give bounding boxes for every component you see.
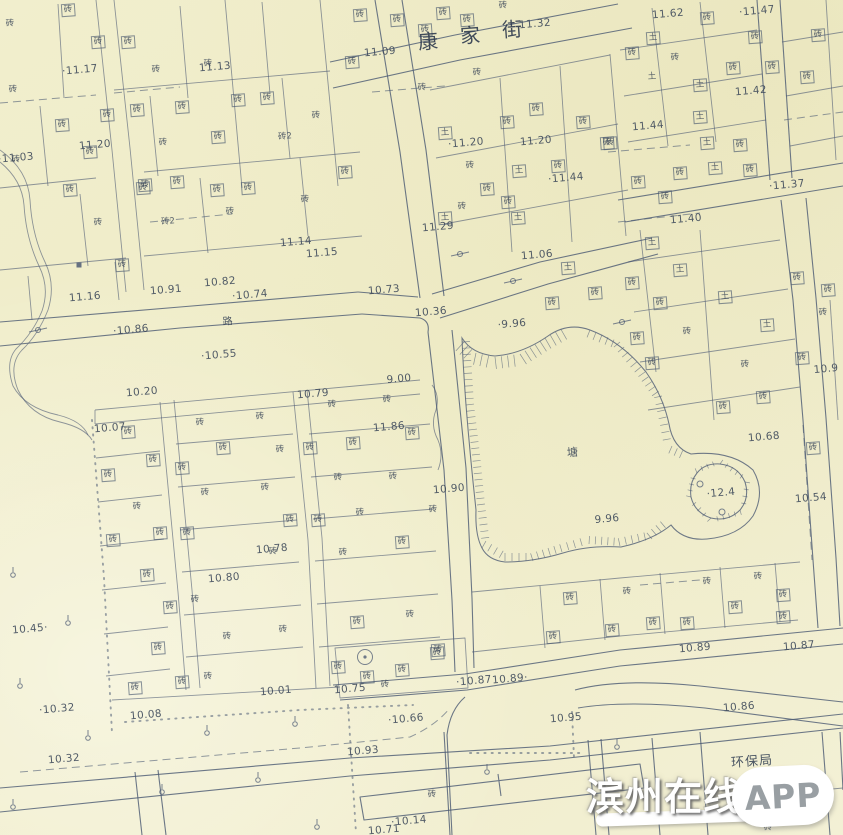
slope-hachure-tick — [556, 332, 562, 342]
pond-island — [691, 464, 747, 519]
slope-hachure-tick — [530, 348, 536, 358]
pond — [462, 327, 760, 562]
slope-hachure-tick — [464, 373, 472, 374]
slope-hachure-tick — [656, 403, 664, 405]
slope-hachure-tick — [464, 379, 472, 380]
grass-symbol — [615, 745, 620, 750]
slope-hachure-tick — [463, 354, 471, 355]
slope-hachure-tick — [468, 423, 476, 424]
benchmark-symbol — [504, 279, 522, 283]
slope-hachure-tick — [580, 538, 582, 546]
slope-hachure-tick — [494, 548, 498, 555]
slope-hachure-tick — [614, 538, 615, 546]
scanned-cadastral-map: ·11.1711.13·11.0311.2011.1610.9110.82·10… — [0, 0, 843, 835]
slope-hachure-tick — [536, 552, 538, 560]
slope-hachure-tick — [741, 503, 746, 504]
slope-hachure-tick — [482, 541, 486, 548]
slope-hachure-tick — [688, 490, 693, 491]
slope-hachure-tick — [464, 367, 472, 368]
grass-symbol — [485, 770, 490, 775]
slope-hachure-tick — [560, 544, 562, 552]
grass-symbol — [293, 722, 298, 727]
grass-symbol — [11, 805, 16, 810]
slope-hachure-tick — [466, 398, 474, 399]
slope-hachure-tick — [476, 492, 484, 493]
slope-hachure-tick — [744, 489, 749, 490]
slope-hachure-tick — [468, 417, 476, 418]
slope-hachure-tick — [475, 479, 483, 480]
map-linework — [0, 0, 843, 835]
slope-hachure-tick — [740, 510, 741, 515]
slope-hachure-tick — [464, 349, 472, 358]
slope-hachure-tick — [622, 352, 628, 357]
slope-hachure-tick — [499, 551, 503, 558]
slope-hachure-tick — [471, 448, 479, 449]
slope-hachure-tick — [480, 354, 482, 366]
slope-hachure-tick — [561, 329, 567, 339]
slope-hachure-tick — [720, 460, 723, 464]
slope-hachure-tick — [635, 367, 641, 372]
slope-hachure-tick — [645, 382, 652, 387]
slope-hachure-tick — [608, 537, 609, 545]
slope-hachure-tick — [657, 410, 665, 412]
slope-hachure-tick — [514, 355, 515, 367]
slope-hachure-tick — [644, 533, 646, 541]
island-dot-symbol — [697, 481, 703, 487]
grass-symbol — [256, 778, 261, 783]
slope-hachure-tick — [660, 522, 665, 528]
slope-hachure-tick — [595, 536, 596, 544]
slope-hachure-tick — [686, 496, 691, 497]
pond-bank-hachures — [456, 329, 750, 561]
grass-symbol — [86, 736, 91, 741]
benchmark-symbol — [451, 252, 469, 256]
slope-hachure-tick — [463, 360, 471, 361]
grass-symbol — [205, 731, 210, 736]
slope-hachure-tick — [481, 537, 489, 538]
slope-hachure-tick — [697, 508, 701, 511]
slope-hachure-tick — [474, 473, 482, 474]
slope-hachure-tick — [474, 353, 476, 365]
slope-hachure-tick — [618, 538, 620, 546]
slope-hachure-tick — [545, 338, 551, 348]
slope-hachure-tick — [473, 460, 481, 461]
slope-hachure-tick — [637, 534, 639, 542]
slope-hachure-tick — [480, 524, 488, 525]
map-symbols — [11, 252, 725, 830]
slope-hachure-tick — [472, 454, 480, 455]
slope-hachure-tick — [548, 548, 550, 556]
slope-hachure-tick — [501, 356, 502, 368]
slope-hachure-tick — [695, 468, 697, 473]
roads — [0, 0, 843, 835]
slope-hachure-tick — [478, 511, 486, 512]
benchmark-symbol — [613, 320, 631, 324]
slope-hachure-tick — [462, 348, 470, 349]
slope-hachure-tick — [477, 504, 485, 505]
slope-hachure-tick — [495, 357, 496, 369]
slope-hachure-tick — [462, 341, 470, 342]
slope-hachure-tick — [550, 335, 556, 345]
slope-hachure-tick — [656, 525, 661, 531]
slope-hachure-tick — [469, 429, 477, 430]
slope-hachure-tick — [651, 529, 656, 535]
slope-hachure-tick — [525, 351, 531, 361]
slope-hachure-tick — [625, 537, 627, 545]
slope-hachure-tick — [480, 531, 488, 532]
slope-hachure-tick — [669, 446, 672, 453]
slope-hachure-tick — [663, 439, 671, 440]
island-dot-symbol — [719, 509, 725, 515]
slope-hachure-tick — [642, 377, 649, 382]
slope-hachure-tick — [649, 386, 656, 391]
slope-hachure-tick — [735, 471, 738, 475]
slope-hachure-tick — [660, 424, 668, 425]
slope-hachure-tick — [661, 431, 669, 432]
slope-hachure-tick — [486, 356, 488, 368]
slope-hachure-tick — [638, 372, 645, 377]
slope-hachure-tick — [466, 404, 474, 405]
slope-hachure-tick — [465, 392, 473, 393]
well-symbol — [363, 655, 366, 658]
slope-hachure-tick — [473, 467, 481, 468]
slope-hachure-tick — [587, 330, 590, 337]
grass-symbol — [315, 825, 320, 830]
grass-symbol — [18, 684, 23, 689]
grass-symbol — [66, 621, 71, 626]
slope-hachure-tick — [535, 344, 541, 354]
slope-hachure-tick — [467, 410, 475, 411]
slope-hachure-tick — [460, 346, 468, 355]
slope-hachure-tick — [476, 498, 484, 499]
control-point-symbol — [77, 263, 82, 268]
slope-hachure-tick — [652, 391, 659, 396]
slope-hachure-tick — [488, 544, 492, 551]
grass-symbol — [11, 573, 16, 578]
slope-hachure-tick — [659, 417, 667, 419]
slope-hachure-tick — [542, 550, 544, 558]
slope-hachure-tick — [475, 485, 483, 486]
slope-hachure-tick — [626, 357, 632, 362]
slope-hachure-tick — [554, 546, 556, 554]
slope-hachure-tick — [520, 354, 526, 364]
slope-hachure-tick — [599, 335, 602, 342]
slope-hachure-tick — [674, 448, 677, 455]
slope-hachure-tick — [566, 542, 568, 550]
slope-hachure-tick — [471, 442, 479, 443]
slope-hachure-tick — [605, 337, 608, 344]
slope-hachure-tick — [679, 451, 682, 458]
slope-hachure-tick — [540, 341, 546, 351]
slope-hachure-tick — [589, 536, 590, 544]
slope-hachure-tick — [593, 332, 596, 339]
slope-hachure-tick — [707, 518, 711, 521]
slope-hachure-tick — [465, 386, 473, 387]
slope-hachure-tick — [601, 537, 602, 545]
slope-hachure-tick — [631, 362, 637, 367]
slope-hachure-tick — [479, 517, 487, 518]
slope-hachure-tick — [470, 435, 478, 436]
slope-hachure-tick — [573, 540, 575, 548]
slope-hachure-tick — [631, 535, 633, 543]
slope-hachure-tick — [508, 356, 509, 368]
